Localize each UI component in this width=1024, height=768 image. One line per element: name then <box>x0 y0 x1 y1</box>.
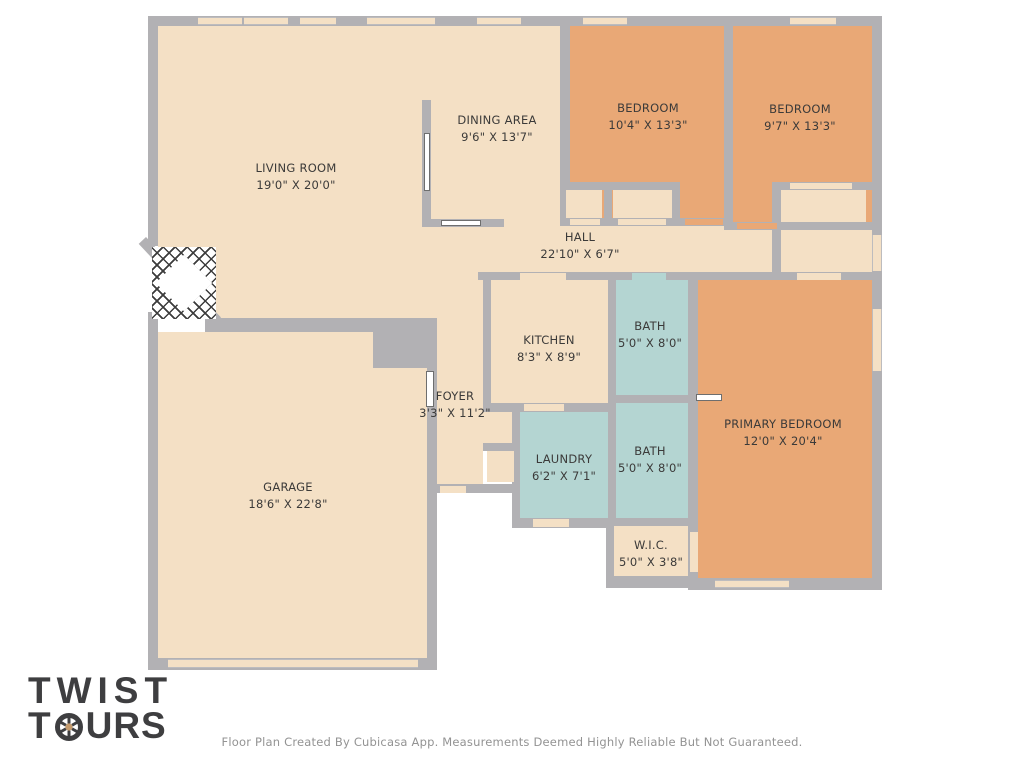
wall-segment <box>772 188 781 280</box>
wall-segment <box>724 16 733 222</box>
room-dims: 8'3" X 8'9" <box>517 349 581 366</box>
room-name: FOYER <box>419 388 491 405</box>
room-name: BATH <box>618 318 682 335</box>
floor-area <box>440 486 466 493</box>
wall-segment <box>148 16 158 246</box>
room-name: BEDROOM <box>764 101 836 118</box>
wall-segment <box>606 576 696 588</box>
bedroom-floor <box>685 219 723 225</box>
room-label-bedroom-2: BEDROOM 9'7" X 13'3" <box>764 101 836 135</box>
window-marker <box>790 17 836 25</box>
disclaimer-text: Floor Plan Created By Cubicasa App. Meas… <box>0 735 1024 749</box>
room-name: LAUNDRY <box>532 451 596 468</box>
room-name: GARAGE <box>248 479 327 496</box>
room-dims: 9'7" X 13'3" <box>764 118 836 135</box>
bedroom-floor <box>737 223 777 229</box>
floor-area <box>790 183 852 189</box>
door-marker <box>696 394 722 401</box>
room-label-foyer: FOYER 3'3" X 11'2" <box>419 388 491 422</box>
room-dims: 5'0" X 8'0" <box>618 335 682 352</box>
window-marker <box>367 17 435 25</box>
room-label-bath-1: BATH 5'0" X 8'0" <box>618 318 682 352</box>
room-label-kitchen: KITCHEN 8'3" X 8'9" <box>517 332 581 366</box>
room-label-hall: HALL 22'10" X 6'7" <box>540 229 619 263</box>
wall-segment <box>373 330 435 368</box>
floor-area <box>613 190 672 218</box>
wet-room-floor <box>632 273 666 280</box>
room-name: HALL <box>540 229 619 246</box>
window-marker <box>583 17 627 25</box>
room-label-laundry: LAUNDRY 6'2" X 7'1" <box>532 451 596 485</box>
floor-area <box>781 230 866 272</box>
room-name: PRIMARY BEDROOM <box>724 416 842 433</box>
door-marker <box>441 220 481 226</box>
window-marker <box>244 17 288 25</box>
door-marker <box>424 133 430 191</box>
window-marker <box>872 309 882 371</box>
room-name: DINING AREA <box>457 112 536 129</box>
window-marker <box>477 17 521 25</box>
window-marker <box>715 580 789 588</box>
window-marker <box>872 235 882 271</box>
twist-tours-logo: TWIST T URS <box>28 674 173 744</box>
wall-segment <box>148 312 158 670</box>
floor-area <box>520 273 566 280</box>
floor-area <box>781 190 866 222</box>
floor-area <box>566 190 602 218</box>
room-dims: 9'6" X 13'7" <box>457 129 536 146</box>
logo-line-1: TWIST <box>28 674 173 708</box>
window-marker <box>198 17 242 25</box>
room-dims: 6'2" X 7'1" <box>532 468 596 485</box>
room-dims: 10'4" X 13'3" <box>608 117 687 134</box>
window-marker <box>168 659 418 668</box>
room-label-garage: GARAGE 18'6" X 22'8" <box>248 479 327 513</box>
floor-area <box>690 532 698 572</box>
wall-segment <box>606 518 696 526</box>
room-dims: 19'0" X 20'0" <box>256 177 337 194</box>
room-name: KITCHEN <box>517 332 581 349</box>
room-dims: 18'6" X 22'8" <box>248 496 327 513</box>
floor-area <box>435 272 483 488</box>
room-name: LIVING ROOM <box>256 160 337 177</box>
room-label-wic: W.I.C. 5'0" X 3'8" <box>619 537 683 571</box>
room-dims: 3'3" X 11'2" <box>419 405 491 422</box>
fireplace-icon <box>152 247 216 319</box>
floor-area <box>570 219 600 225</box>
room-dims: 5'0" X 8'0" <box>618 460 682 477</box>
wall-segment <box>614 395 690 403</box>
room-name: BATH <box>618 443 682 460</box>
floor-area <box>618 219 666 225</box>
wall-segment <box>872 16 882 588</box>
floor-area <box>487 451 514 482</box>
floor-plan-page: LIVING ROOM 19'0" X 20'0" DINING AREA 9'… <box>0 0 1024 768</box>
room-label-primary-bedroom: PRIMARY BEDROOM 12'0" X 20'4" <box>724 416 842 450</box>
room-name: W.I.C. <box>619 537 683 554</box>
room-label-bath-2: BATH 5'0" X 8'0" <box>618 443 682 477</box>
room-name: BEDROOM <box>608 100 687 117</box>
wall-segment <box>560 182 680 190</box>
wall-segment <box>483 443 520 451</box>
floor-area <box>533 519 569 527</box>
fireplace-hearth <box>156 255 213 312</box>
room-dims: 5'0" X 3'8" <box>619 554 683 571</box>
room-dims: 12'0" X 20'4" <box>724 433 842 450</box>
room-label-living-room: LIVING ROOM 19'0" X 20'0" <box>256 160 337 194</box>
room-dims: 22'10" X 6'7" <box>540 246 619 263</box>
room-label-dining-area: DINING AREA 9'6" X 13'7" <box>457 112 536 146</box>
floor-area <box>797 273 841 280</box>
room-label-bedroom-1: BEDROOM 10'4" X 13'3" <box>608 100 687 134</box>
floor-area <box>524 404 564 411</box>
window-marker <box>300 17 336 25</box>
